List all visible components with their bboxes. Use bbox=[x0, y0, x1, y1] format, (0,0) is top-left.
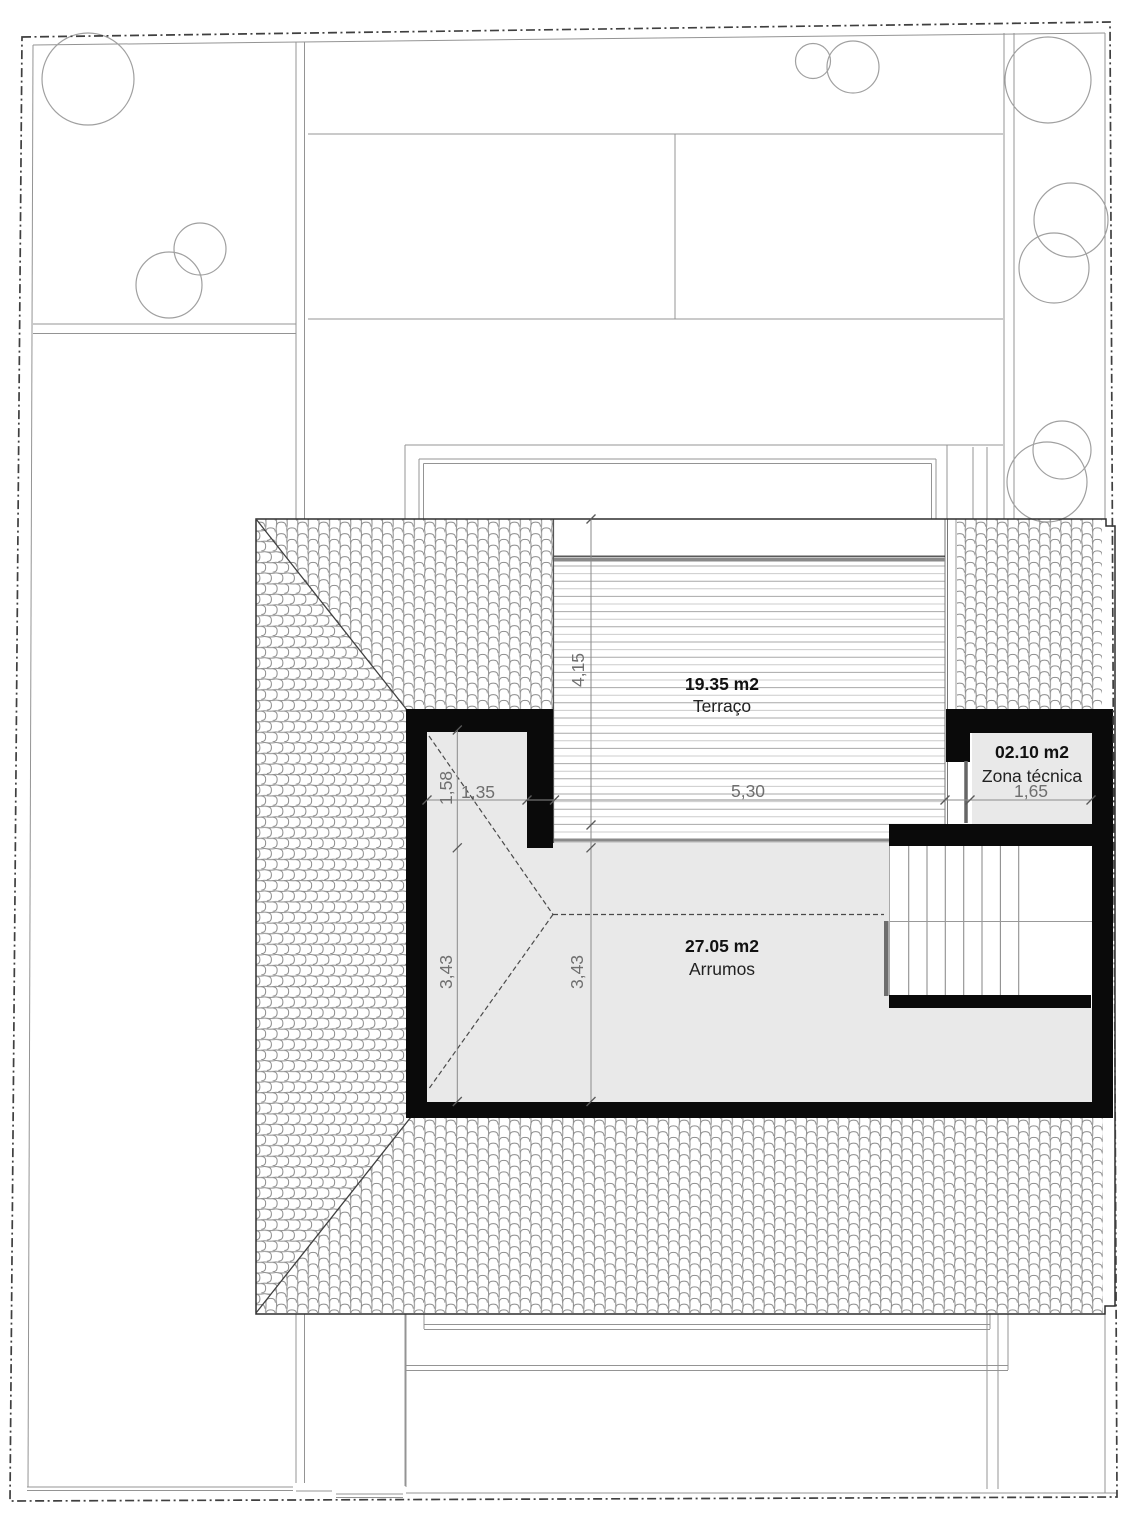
svg-text:4,15: 4,15 bbox=[568, 653, 588, 687]
svg-text:3,43: 3,43 bbox=[567, 955, 587, 989]
svg-text:Arrumos: Arrumos bbox=[689, 959, 755, 979]
svg-text:Zona técnica: Zona técnica bbox=[982, 766, 1082, 786]
svg-text:02.10 m2: 02.10 m2 bbox=[995, 742, 1069, 762]
svg-text:27.05 m2: 27.05 m2 bbox=[685, 936, 759, 956]
svg-text:1,35: 1,35 bbox=[461, 782, 495, 802]
svg-text:3,43: 3,43 bbox=[436, 955, 456, 989]
svg-text:1,58: 1,58 bbox=[436, 771, 456, 805]
svg-text:19.35 m2: 19.35 m2 bbox=[685, 674, 759, 694]
svg-text:5,30: 5,30 bbox=[731, 781, 765, 801]
svg-text:Terraço: Terraço bbox=[693, 696, 751, 716]
